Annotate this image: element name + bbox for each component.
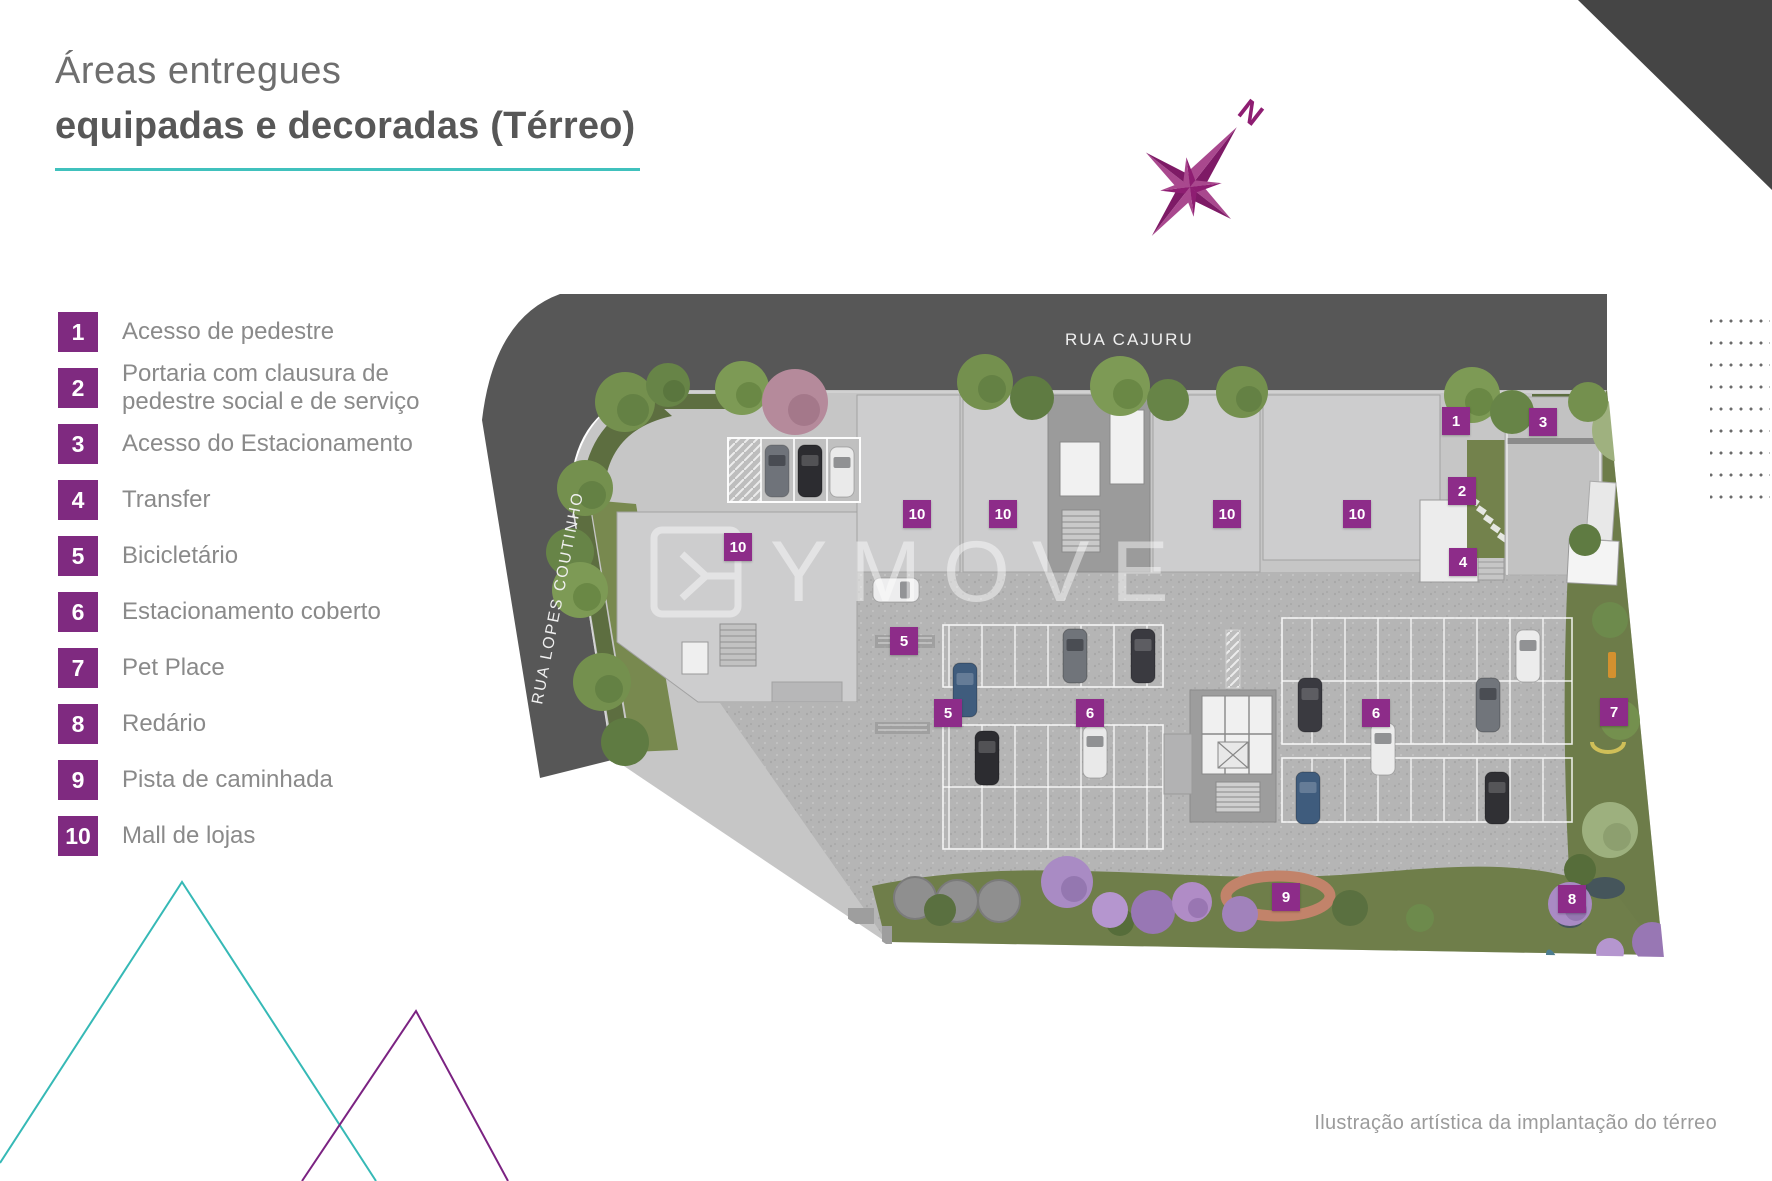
map-marker-10: 10 bbox=[1213, 500, 1241, 528]
map-marker-5: 5 bbox=[934, 699, 962, 727]
map-marker-1: 1 bbox=[1442, 407, 1470, 435]
map-marker-10: 10 bbox=[1343, 500, 1371, 528]
legend-item-5: 5Bicicletário bbox=[58, 536, 442, 576]
map-marker-9: 9 bbox=[1272, 883, 1300, 911]
legend-item-7: 7Pet Place bbox=[58, 648, 442, 688]
map-marker-6: 6 bbox=[1362, 699, 1390, 727]
map-marker-3: 3 bbox=[1529, 408, 1557, 436]
compass-north-label: N bbox=[1232, 95, 1269, 133]
legend-badge: 2 bbox=[58, 368, 98, 408]
map-marker-10: 10 bbox=[903, 500, 931, 528]
purple-chevron bbox=[302, 1011, 508, 1181]
legend-label: Portaria com clausura de pedestre social… bbox=[122, 360, 442, 416]
legend-item-8: 8Redário bbox=[58, 704, 442, 744]
legend-badge: 3 bbox=[58, 424, 98, 464]
page-title-line2: equipadas e decoradas (Térreo) bbox=[55, 105, 640, 148]
legend-label: Pista de caminhada bbox=[122, 766, 442, 794]
legend-label: Bicicletário bbox=[122, 542, 442, 570]
legend-item-4: 4Transfer bbox=[58, 480, 442, 520]
caption: Ilustração artística da implantação do t… bbox=[1314, 1112, 1717, 1135]
legend-badge: 5 bbox=[58, 536, 98, 576]
legend-label: Acesso de pedestre bbox=[122, 318, 442, 346]
corner-triangle-decoration bbox=[1578, 0, 1772, 190]
teal-chevron bbox=[0, 882, 376, 1181]
legend-badge: 9 bbox=[58, 760, 98, 800]
brochure-page: { "title": { "line1": "Áreas entregues",… bbox=[0, 0, 1772, 1181]
map-marker-10: 10 bbox=[989, 500, 1017, 528]
map-marker-7: 7 bbox=[1600, 698, 1628, 726]
chevron-decoration bbox=[0, 850, 620, 1181]
legend-label: Mall de lojas bbox=[122, 822, 442, 850]
legend-item-1: 1Acesso de pedestre bbox=[58, 312, 442, 352]
map-marker-4: 4 bbox=[1449, 548, 1477, 576]
legend-label: Acesso do Estacionamento bbox=[122, 430, 442, 458]
legend-badge: 4 bbox=[58, 480, 98, 520]
legend-item-2: 2Portaria com clausura de pedestre socia… bbox=[58, 368, 442, 408]
page-title-line1: Áreas entregues bbox=[55, 50, 640, 93]
legend-badge: 7 bbox=[58, 648, 98, 688]
map-marker-6: 6 bbox=[1076, 699, 1104, 727]
map-marker-5: 5 bbox=[890, 627, 918, 655]
legend-item-9: 9Pista de caminhada bbox=[58, 760, 442, 800]
map-marker-2: 2 bbox=[1448, 477, 1476, 505]
legend-item-6: 6Estacionamento coberto bbox=[58, 592, 442, 632]
legend-badge: 1 bbox=[58, 312, 98, 352]
legend-badge: 6 bbox=[58, 592, 98, 632]
map-marker-10: 10 bbox=[724, 533, 752, 561]
legend-label: Redário bbox=[122, 710, 442, 738]
map-marker-8: 8 bbox=[1558, 885, 1586, 913]
legend-label: Estacionamento coberto bbox=[122, 598, 442, 626]
legend-label: Transfer bbox=[122, 486, 442, 514]
legend-label: Pet Place bbox=[122, 654, 442, 682]
compass-rose-icon: N bbox=[1108, 95, 1298, 255]
title-underline bbox=[55, 168, 640, 171]
legend: 1Acesso de pedestre2Portaria com clausur… bbox=[58, 312, 442, 872]
legend-badge: 8 bbox=[58, 704, 98, 744]
legend-item-3: 3Acesso do Estacionamento bbox=[58, 424, 442, 464]
page-title: Áreas entregues equipadas e decoradas (T… bbox=[55, 50, 640, 171]
